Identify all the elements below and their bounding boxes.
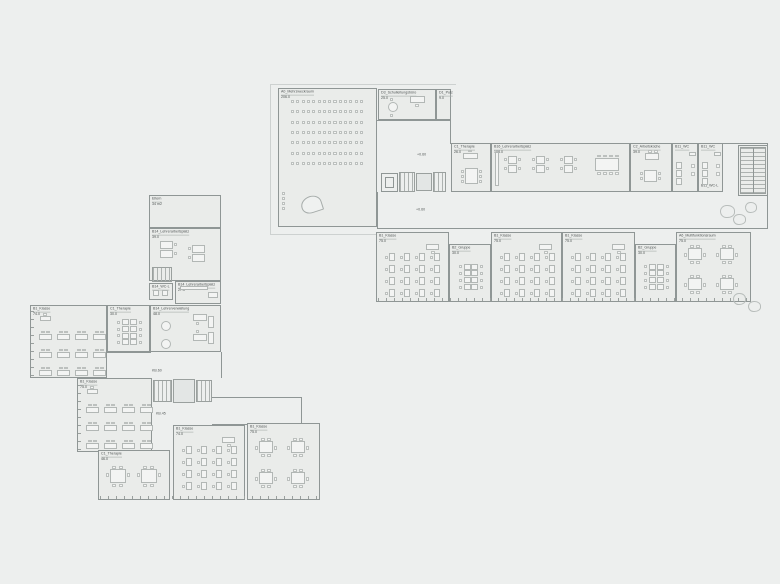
- chair: [360, 162, 363, 165]
- room-name: B1_Klasse: [176, 427, 193, 432]
- chair: [274, 446, 277, 450]
- furniture: [612, 244, 625, 250]
- chair: [307, 162, 310, 165]
- chair: [616, 292, 619, 295]
- chair: [339, 121, 342, 124]
- room-area: 34 m2: [152, 202, 162, 207]
- chair: [328, 152, 331, 155]
- room-name: B14_Lehrerarbeitsplatz: [152, 230, 189, 235]
- furniture: [86, 425, 99, 431]
- furniture: [720, 248, 734, 260]
- chair: [571, 292, 574, 295]
- chair: [106, 422, 110, 425]
- furniture: [160, 241, 173, 249]
- furniture: [575, 289, 581, 297]
- room-label: B16_Lehrerarbeitsplatz108.0: [494, 145, 531, 155]
- stair-landing: [416, 173, 432, 191]
- furniture: [590, 253, 596, 261]
- room-label: C1_Therapie46.0: [101, 452, 122, 462]
- furniture: [575, 253, 581, 261]
- wall-segment: [377, 228, 768, 229]
- room-name: A6_Multifunktionsraum: [679, 234, 716, 239]
- chair: [532, 167, 535, 170]
- furniture: [605, 277, 611, 285]
- furniture: [40, 316, 51, 321]
- chair: [117, 341, 120, 344]
- room-area: 75.0: [250, 430, 267, 435]
- chair: [690, 245, 694, 248]
- chair: [255, 446, 258, 450]
- furniture: [676, 162, 682, 169]
- chair: [696, 275, 700, 278]
- room-area: 9.0: [439, 96, 453, 101]
- chair: [480, 272, 483, 275]
- furniture: [122, 333, 129, 339]
- furniture: [130, 339, 137, 345]
- chair: [390, 98, 393, 101]
- furniture: [688, 248, 702, 260]
- chair: [299, 485, 303, 488]
- chair: [90, 386, 94, 389]
- room-name: B16_Lehrerarbeitsplatz: [494, 145, 531, 150]
- chair: [197, 485, 200, 488]
- chair: [306, 477, 309, 481]
- chair: [574, 167, 577, 170]
- chair: [112, 466, 116, 469]
- chair: [500, 256, 503, 259]
- chair: [415, 104, 419, 107]
- room-name: B1_Klasse: [494, 234, 511, 239]
- room-wc-l: B14_WC-L: [149, 283, 173, 300]
- chair: [360, 121, 363, 124]
- room-label: B1_Klasse75.0: [565, 234, 582, 244]
- furniture: [130, 333, 137, 339]
- furniture: [216, 446, 222, 454]
- chair: [515, 268, 518, 271]
- chair: [480, 279, 483, 282]
- room-area: 75.0: [679, 239, 716, 244]
- chair: [323, 141, 326, 144]
- chair: [601, 292, 604, 295]
- chair: [658, 172, 661, 175]
- room-name: B1_Klasse: [33, 307, 50, 312]
- chair: [124, 440, 128, 443]
- chair: [291, 131, 294, 134]
- chair: [64, 367, 68, 370]
- furniture: [410, 96, 425, 103]
- chair: [504, 167, 507, 170]
- furniture: [605, 265, 611, 273]
- chair: [93, 422, 97, 425]
- room-label: C1_Therapie30.0: [110, 307, 131, 317]
- chair: [312, 131, 315, 134]
- chair: [333, 141, 336, 144]
- chair: [302, 100, 305, 103]
- chair: [415, 256, 418, 259]
- room-eltern: Eltern34 m2: [149, 195, 221, 228]
- wall-segment: [377, 120, 451, 121]
- furniture: [504, 265, 510, 273]
- furniture: [39, 370, 52, 376]
- furniture: [140, 443, 153, 449]
- chair: [518, 167, 521, 170]
- furniture: [216, 482, 222, 490]
- chair: [615, 172, 619, 175]
- room-klasse-o3: B1_Klasse75.0: [562, 232, 635, 302]
- chair: [532, 158, 535, 161]
- chair: [77, 331, 81, 334]
- furniture: [231, 482, 237, 490]
- chair: [728, 291, 732, 294]
- room-name: B11_WC: [675, 145, 689, 150]
- chair: [312, 121, 315, 124]
- chair: [400, 280, 403, 283]
- chair: [328, 100, 331, 103]
- chair: [640, 172, 643, 175]
- chair: [546, 158, 549, 161]
- chair: [293, 469, 297, 472]
- chair: [82, 349, 86, 352]
- chair: [291, 162, 294, 165]
- room-area: 75.0: [565, 239, 582, 244]
- room-label: B14_Lehrerarbeitsplatz39.0: [152, 230, 189, 240]
- chair: [323, 100, 326, 103]
- chair: [349, 152, 352, 155]
- room-name: A0_Mehrzweckraum: [281, 90, 314, 95]
- chair: [318, 121, 321, 124]
- chair: [545, 268, 548, 271]
- room-therapie-ost: C1_Therapie26.0: [451, 143, 491, 192]
- chair: [307, 152, 310, 155]
- chair: [291, 100, 294, 103]
- furniture: [39, 352, 52, 358]
- chair: [333, 162, 336, 165]
- room-area: 30.0: [638, 251, 656, 256]
- chair: [158, 473, 161, 477]
- chair: [142, 422, 146, 425]
- chair: [574, 158, 577, 161]
- chair: [355, 141, 358, 144]
- chair: [182, 485, 185, 488]
- room-name: B11_WC: [701, 145, 715, 150]
- furniture: [575, 277, 581, 285]
- chair: [722, 275, 726, 278]
- chair: [302, 110, 305, 113]
- furniture: [122, 425, 135, 431]
- chair: [188, 256, 191, 259]
- chair: [196, 322, 199, 325]
- furniture: [464, 264, 471, 270]
- chair: [227, 449, 230, 452]
- room-lehrerverwaltung: B14_Lehrerverwaltung48.0: [150, 305, 221, 352]
- chair: [601, 256, 604, 259]
- chair: [328, 162, 331, 165]
- chair: [691, 172, 695, 176]
- chair: [302, 121, 305, 124]
- room-klasse-o2: B1_Klasse75.0: [491, 232, 562, 302]
- furniture: [534, 289, 540, 297]
- chair: [349, 110, 352, 113]
- window-mullions: [78, 380, 81, 450]
- furniture: [620, 289, 626, 297]
- chair: [95, 349, 99, 352]
- furniture: [130, 319, 137, 325]
- furniture: [426, 244, 439, 250]
- chair: [147, 440, 151, 443]
- chair: [328, 110, 331, 113]
- chair: [197, 473, 200, 476]
- chair: [349, 121, 352, 124]
- furniture: [162, 290, 168, 296]
- chair: [293, 485, 297, 488]
- room-therapie-30: C1_Therapie30.0: [107, 305, 150, 352]
- furniture: [75, 334, 88, 340]
- chair: [355, 131, 358, 134]
- chair: [333, 152, 336, 155]
- furniture: [434, 265, 440, 273]
- chair: [560, 167, 563, 170]
- chair: [504, 158, 507, 161]
- chair: [666, 286, 669, 289]
- wall-segment: [107, 352, 151, 353]
- furniture: [464, 277, 471, 283]
- chair: [360, 110, 363, 113]
- chair: [339, 110, 342, 113]
- chair: [142, 404, 146, 407]
- chair: [571, 256, 574, 259]
- chair: [119, 484, 123, 487]
- chair: [530, 280, 533, 283]
- chair: [430, 268, 433, 271]
- chair: [293, 438, 297, 441]
- chair: [296, 121, 299, 124]
- chair: [722, 245, 726, 248]
- room-name: B1_Klasse: [250, 425, 267, 430]
- chair: [716, 253, 719, 257]
- room-schulleitungsbuero: D3_Schulleitungsbüro25.0: [378, 89, 436, 120]
- chair: [344, 100, 347, 103]
- furniture: [620, 253, 626, 261]
- room-label: A6_Multifunktionsraum75.0: [679, 234, 716, 244]
- chair: [182, 461, 185, 464]
- furniture: [186, 446, 192, 454]
- chair: [480, 265, 483, 268]
- room-label: Eltern34 m2: [152, 197, 162, 207]
- chair: [385, 292, 388, 295]
- room-klasse-w4: B1_Klasse75.0: [247, 423, 320, 500]
- chair: [603, 155, 607, 158]
- round-table: [388, 102, 398, 112]
- chair: [261, 438, 265, 441]
- furniture: [404, 253, 410, 261]
- chair: [530, 268, 533, 271]
- furniture: [75, 352, 88, 358]
- room-label: B11_WC: [675, 145, 689, 150]
- chair: [323, 152, 326, 155]
- chair: [648, 150, 652, 153]
- chair: [666, 272, 669, 275]
- chair: [296, 152, 299, 155]
- furniture: [93, 334, 106, 340]
- chair: [261, 485, 265, 488]
- furniture: [201, 482, 207, 490]
- elevator-shaft: [381, 173, 398, 192]
- furniture: [419, 277, 425, 285]
- facade-outline: [270, 84, 271, 235]
- chair: [299, 438, 303, 441]
- chair: [46, 349, 50, 352]
- room-klasse-w1: B1_Klasse74.0: [30, 305, 107, 378]
- furniture: [714, 152, 721, 156]
- chair: [333, 110, 336, 113]
- chair: [142, 440, 146, 443]
- chair: [282, 197, 285, 200]
- chair: [480, 286, 483, 289]
- furniture: [590, 265, 596, 273]
- furniture: [644, 170, 657, 182]
- chair: [696, 261, 700, 264]
- furniture: [141, 469, 157, 483]
- room-label: B1_Klasse75.0: [379, 234, 396, 244]
- chair: [616, 256, 619, 259]
- tree: [745, 202, 757, 213]
- chair: [400, 268, 403, 271]
- room-label: A0_Mehrzweckraum206.0: [281, 90, 314, 100]
- chair: [88, 404, 92, 407]
- furniture: [549, 265, 555, 273]
- furniture: [549, 277, 555, 285]
- stairs: [740, 147, 766, 194]
- chair: [296, 131, 299, 134]
- furniture: [595, 158, 619, 171]
- room-label: B1_Klasse75.0: [250, 425, 267, 435]
- chair: [174, 243, 177, 246]
- chair: [112, 484, 116, 487]
- chair: [129, 422, 133, 425]
- chair: [41, 331, 45, 334]
- room-name: B2_Gruppe: [638, 246, 656, 251]
- furniture: [564, 156, 573, 164]
- furniture: [536, 165, 545, 173]
- tree: [733, 214, 746, 225]
- chair: [117, 321, 120, 324]
- furniture: [590, 289, 596, 297]
- furniture: [259, 441, 273, 453]
- room-lehrerarbeitsplatz-108: B16_Lehrerarbeitsplatz108.0: [491, 143, 630, 192]
- furniture: [104, 443, 117, 449]
- chair: [282, 202, 285, 205]
- furniture: [534, 277, 540, 285]
- chair: [307, 141, 310, 144]
- chair: [106, 404, 110, 407]
- chair: [601, 268, 604, 271]
- chair: [461, 170, 464, 173]
- furniture: [86, 443, 99, 449]
- furniture: [590, 277, 596, 285]
- room-putzraum: D1_Putz9.0: [436, 89, 451, 120]
- furniture: [216, 458, 222, 466]
- chair: [390, 114, 393, 117]
- wall-segment: [221, 352, 222, 378]
- chair: [518, 158, 521, 161]
- chair: [544, 251, 548, 254]
- room-label: B1_Klasse74.0: [176, 427, 193, 437]
- chair: [261, 454, 265, 457]
- chair: [603, 172, 607, 175]
- chair: [129, 440, 133, 443]
- chair: [137, 473, 140, 477]
- room-name: Eltern: [152, 197, 161, 202]
- chair: [430, 256, 433, 259]
- stairs: [399, 172, 415, 192]
- chair: [728, 275, 732, 278]
- furniture: [519, 289, 525, 297]
- chair: [127, 473, 130, 477]
- chair: [124, 404, 128, 407]
- room-area: 75.0: [379, 239, 396, 244]
- furniture: [434, 253, 440, 261]
- chair: [468, 150, 472, 153]
- chair: [644, 265, 647, 268]
- furniture: [186, 458, 192, 466]
- chair: [385, 280, 388, 283]
- furniture: [508, 156, 517, 164]
- chair: [459, 279, 462, 282]
- chair: [609, 172, 613, 175]
- chair: [344, 131, 347, 134]
- furniture: [495, 152, 499, 186]
- furniture: [222, 437, 235, 443]
- chair: [227, 461, 230, 464]
- chair: [461, 180, 464, 183]
- chair: [333, 131, 336, 134]
- stairs: [152, 267, 172, 282]
- chair: [291, 152, 294, 155]
- chair: [307, 100, 310, 103]
- room-label: B14_Lehrerverwaltung48.0: [153, 307, 189, 317]
- furniture: [620, 277, 626, 285]
- chair: [188, 247, 191, 250]
- furniture: [519, 253, 525, 261]
- chair: [571, 280, 574, 283]
- chair: [43, 313, 47, 316]
- chair: [307, 131, 310, 134]
- chair: [355, 152, 358, 155]
- furniture: [192, 245, 205, 253]
- chair: [609, 155, 613, 158]
- chair: [82, 367, 86, 370]
- chair: [59, 349, 63, 352]
- room-gruppe-o1: B2_Gruppe30.0: [449, 244, 491, 302]
- furniture: [419, 253, 425, 261]
- chair: [355, 110, 358, 113]
- chair: [400, 256, 403, 259]
- furniture: [201, 446, 207, 454]
- chair: [703, 253, 706, 257]
- furniture: [389, 265, 395, 273]
- furniture: [536, 156, 545, 164]
- chair: [323, 131, 326, 134]
- furniture: [434, 277, 440, 285]
- furniture: [657, 277, 664, 283]
- furniture: [649, 284, 656, 290]
- chair: [267, 469, 271, 472]
- chair: [644, 279, 647, 282]
- furniture: [434, 289, 440, 297]
- chair: [716, 172, 720, 176]
- furniture: [201, 470, 207, 478]
- chair: [735, 283, 738, 287]
